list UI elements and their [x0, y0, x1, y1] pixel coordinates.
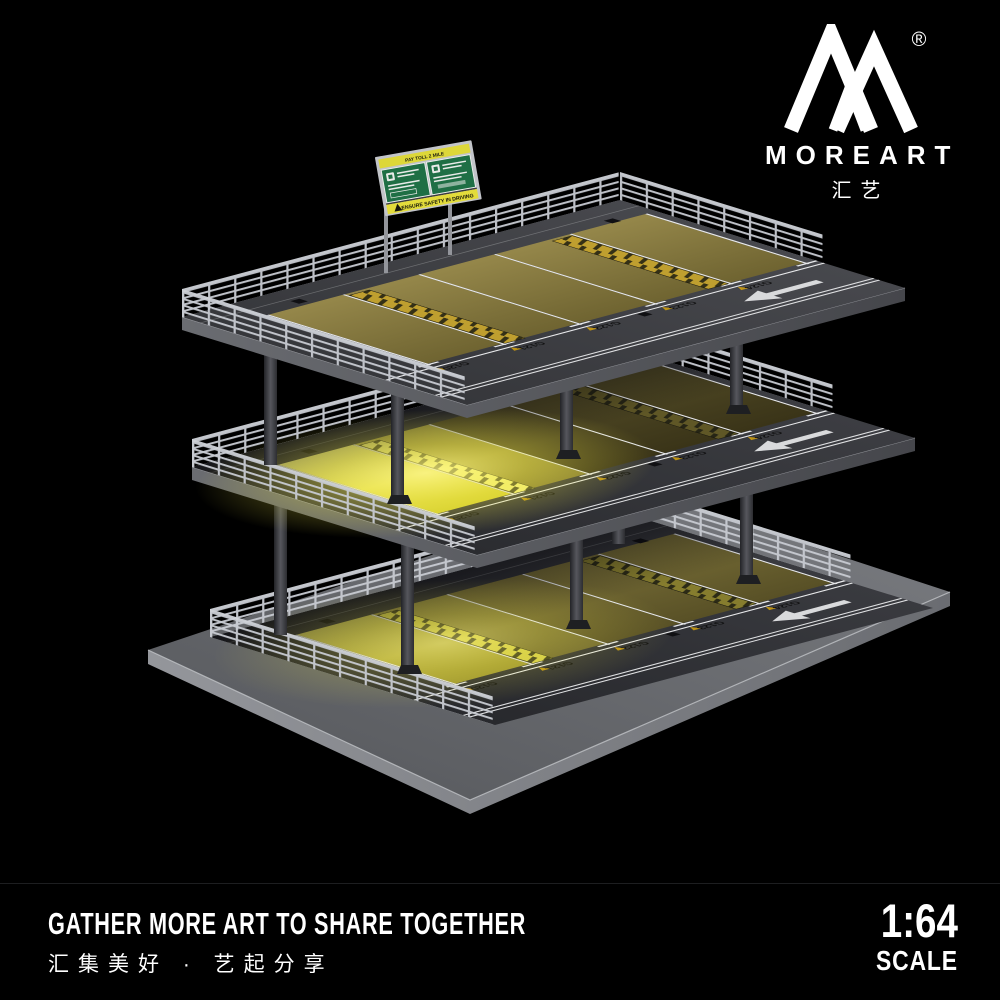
tagline-english: GATHER MORE ART TO SHARE TOGETHER	[48, 906, 526, 942]
brand-name: MOREART	[756, 140, 956, 171]
scale-block: 1:64 SCALE	[858, 896, 958, 977]
moreart-mountain-logo-icon: ®	[771, 24, 941, 136]
scale-label: SCALE	[876, 945, 958, 977]
brand-logo: ® MOREART 汇艺	[756, 24, 956, 203]
tagline-chinese: 汇集美好 · 艺起分享	[48, 948, 334, 978]
registered-mark: ®	[912, 29, 927, 51]
brand-name-chinese: 汇艺	[756, 174, 956, 203]
footer-tagline: GATHER MORE ART TO SHARE TOGETHER	[48, 906, 731, 942]
footer-divider	[0, 883, 1000, 884]
scale-ratio: 1:64	[876, 896, 958, 945]
product-photo: G120 G121 G122 G123 G124	[0, 0, 1000, 1000]
